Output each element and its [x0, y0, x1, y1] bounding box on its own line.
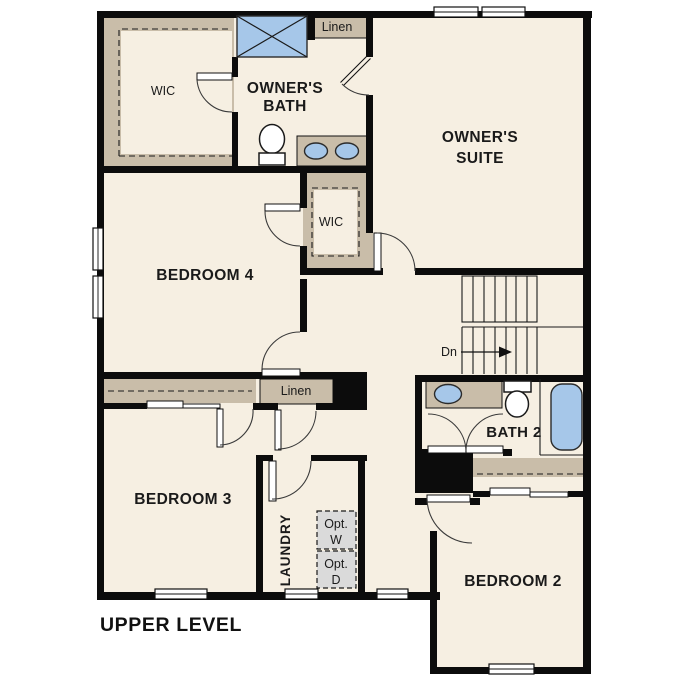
window-bedroom4-2: [93, 276, 103, 318]
wall-closet-front-b3: [104, 403, 147, 409]
dryer-label-2: D: [331, 573, 340, 587]
wall-wic-bath-upper: [232, 57, 238, 77]
bedroom2-closet-door-1: [490, 488, 530, 495]
wall-bedroom2-north-post: [470, 498, 480, 505]
floor-plan-svg: Dn: [0, 0, 687, 687]
owners-wic-inner: [121, 31, 232, 154]
wall-b2closet-front-right: [568, 491, 583, 497]
wall-bedroom2-north-left: [415, 498, 427, 505]
window-bedroom2: [489, 664, 534, 674]
wall-linen-post-left: [253, 403, 278, 410]
linen-upper-label: Linen: [322, 20, 353, 34]
washer-label-1: Opt.: [324, 517, 348, 531]
window-suite-1: [434, 7, 478, 17]
wall-service-row: [97, 372, 367, 379]
wall-wic-bath-lower: [232, 112, 238, 168]
washer-label-2: W: [330, 533, 342, 547]
bath2-sink: [435, 385, 462, 404]
owners-wic-door-leaf: [197, 73, 232, 80]
dryer-label-1: Opt.: [324, 557, 348, 571]
wall-bath-suite-lower: [366, 95, 373, 233]
bath2-toilet-bowl: [506, 391, 529, 417]
bedroom2-label: BEDROOM 2: [464, 573, 561, 590]
wall-bath-suite-upper: [366, 11, 373, 57]
stairs-down-label: Dn: [441, 345, 457, 359]
owners-sink-2: [336, 143, 359, 159]
bedroom3-closet-door-2: [183, 404, 220, 408]
bath2-tub: [551, 384, 582, 450]
laundry-label: LAUNDRY: [278, 514, 293, 587]
bedroom2-closet-door-2: [530, 492, 568, 497]
bedroom3-door-leaf: [217, 409, 223, 447]
window-bedroom4-1: [93, 228, 103, 270]
wall-bedroom2-left: [430, 531, 437, 674]
bedroom3-label: BEDROOM 3: [134, 491, 231, 508]
wall-right: [583, 11, 591, 674]
window-suite-2: [482, 7, 525, 17]
owners-toilet-bowl: [260, 125, 285, 154]
wall-laundry-left: [256, 455, 263, 600]
chase-bedroom2: [415, 452, 473, 493]
bath2-door-leaf-left: [428, 446, 466, 453]
linen-hall-door-leaf: [275, 410, 281, 450]
wall-bath2-vestibule-left: [415, 375, 422, 455]
owners-wic-label: WIC: [151, 84, 175, 98]
wall-bath2-top: [415, 375, 590, 382]
wall-laundry-right: [358, 455, 365, 600]
window-hall: [377, 589, 408, 599]
wall-suite-south-left: [300, 268, 383, 275]
bath2-label: BATH 2: [486, 424, 541, 441]
bedroom3-closet-door-1: [147, 401, 183, 408]
owners-toilet-tank: [259, 153, 285, 165]
wall-suite-south-right: [415, 268, 590, 275]
bath2-door-leaf-right: [466, 446, 503, 453]
wic2-door-leaf: [265, 204, 300, 211]
bedroom4-door-leaf: [262, 369, 300, 376]
linen-hall-label: Linen: [281, 384, 312, 398]
wall-bath-bedroom4-divider: [97, 166, 373, 173]
laundry-door-leaf: [269, 461, 276, 501]
wall-linen-post-right: [316, 403, 333, 410]
owners-sink-1: [305, 143, 328, 159]
floor-plan: Dn: [0, 0, 687, 687]
owners-suite-label-2: SUITE: [456, 150, 504, 167]
page-title: UPPER LEVEL: [100, 614, 242, 636]
bedroom4-label: BEDROOM 4: [156, 267, 253, 284]
owners-bath-label-2: BATH: [263, 98, 307, 115]
chase-hall: [333, 372, 367, 410]
wall-bedroom4-east: [300, 279, 307, 332]
wall-wic2-left-upper: [300, 172, 307, 208]
wic2-label: WIC: [319, 215, 343, 229]
wall-b2closet-front-left: [473, 491, 490, 497]
owners-bath-label-1: OWNER'S: [247, 80, 323, 97]
bedroom2-door-leaf: [427, 495, 470, 502]
window-laundry: [285, 589, 318, 599]
owners-suite-label-1: OWNER'S: [442, 129, 518, 146]
window-bedroom3: [155, 589, 207, 599]
wall-vestibule-south-right: [503, 449, 512, 456]
owners-suite-door-leaf: [374, 233, 381, 271]
wall-laundry-top-left: [256, 455, 273, 461]
